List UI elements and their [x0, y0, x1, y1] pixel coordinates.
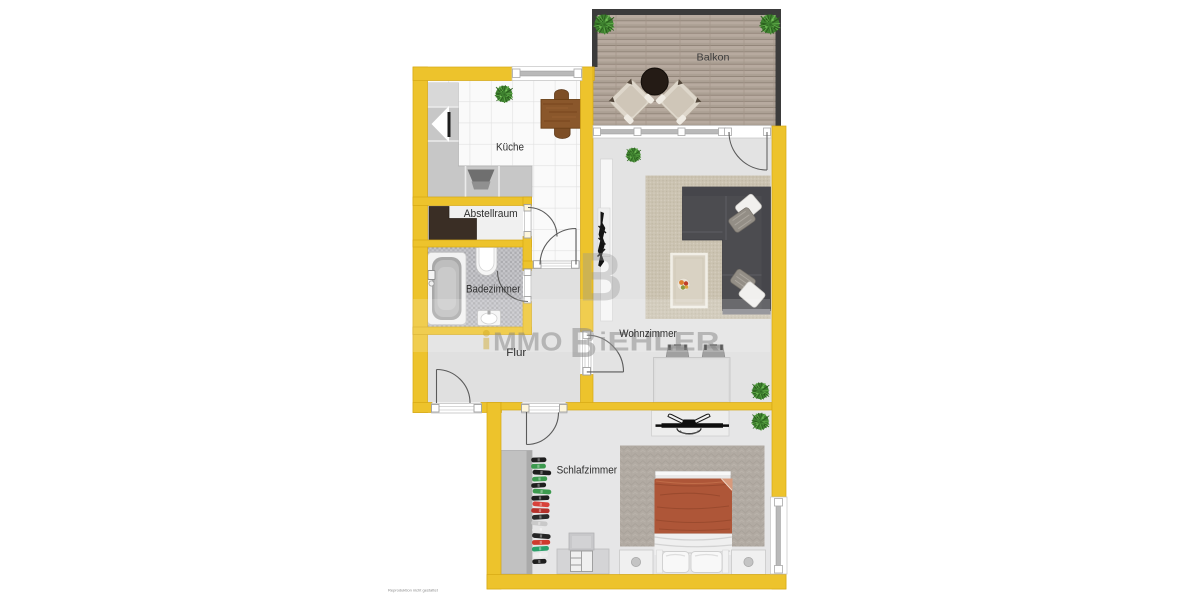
- svg-text:Balkon: Balkon: [697, 52, 730, 64]
- svg-text:i: i: [600, 327, 607, 357]
- svg-text:Badezimmer: Badezimmer: [466, 284, 521, 296]
- svg-text:Abstellraum: Abstellraum: [464, 208, 518, 220]
- svg-text:Schlafzimmer: Schlafzimmer: [557, 465, 618, 477]
- svg-text:B: B: [570, 319, 597, 366]
- svg-text:Wohnzimmer: Wohnzimmer: [619, 328, 677, 340]
- svg-text:MMO: MMO: [493, 327, 563, 357]
- svg-text:Reproduktion nicht gestattet: Reproduktion nicht gestattet: [388, 588, 439, 593]
- svg-text:Flur: Flur: [506, 347, 526, 359]
- svg-text:B: B: [579, 239, 623, 316]
- svg-text:Küche: Küche: [496, 142, 524, 154]
